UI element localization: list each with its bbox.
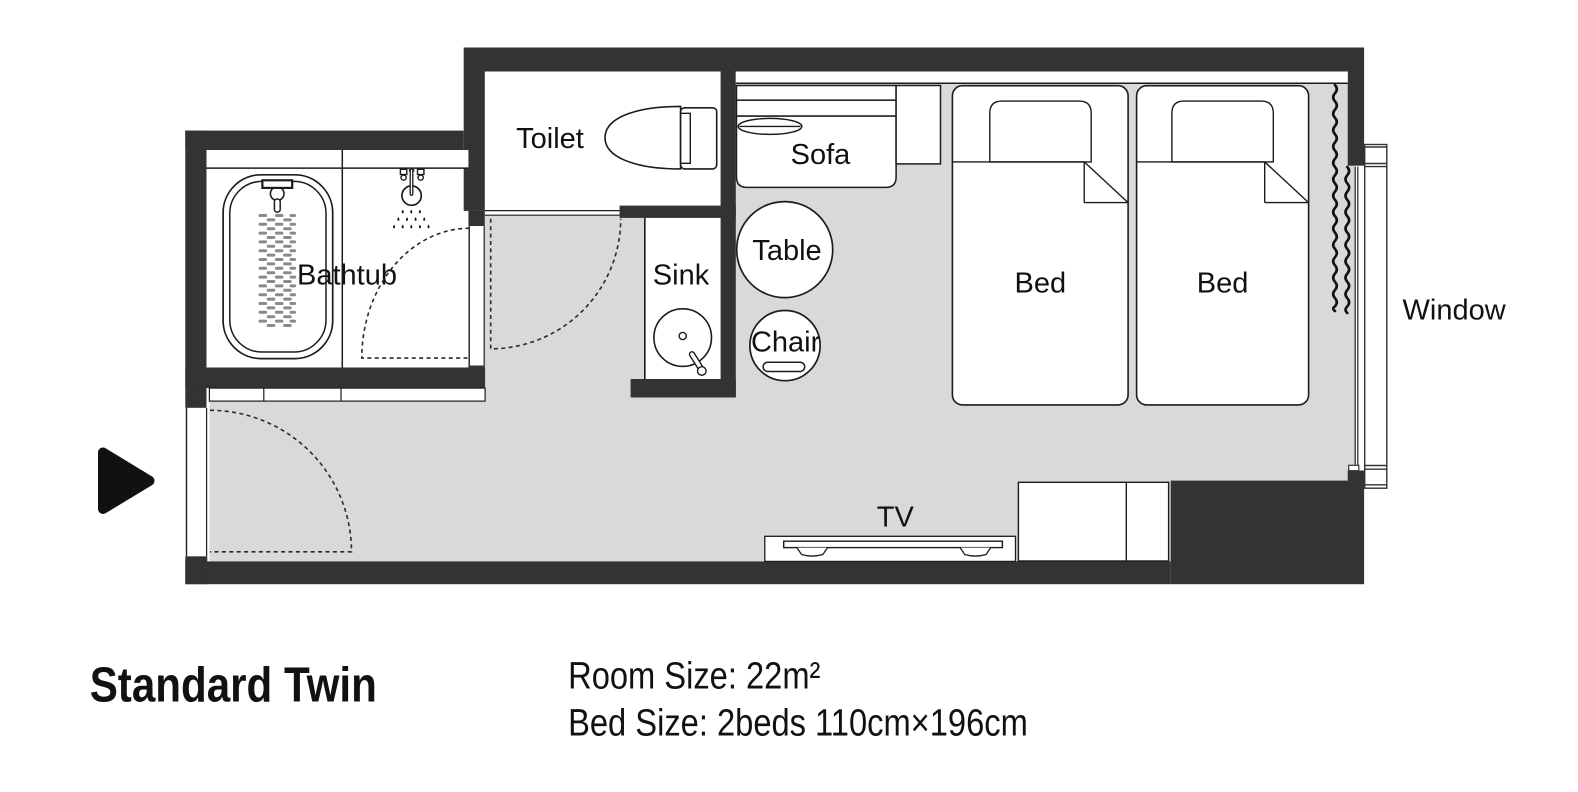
svg-text:Standard Twin: Standard Twin (90, 657, 377, 712)
svg-text:TV: TV (877, 502, 915, 534)
svg-text:Bathtub: Bathtub (297, 259, 397, 291)
svg-text:Room Size: 22m²: Room Size: 22m² (568, 654, 820, 697)
svg-text:Sink: Sink (653, 260, 710, 292)
svg-text:Chair: Chair (751, 327, 821, 359)
svg-text:Sofa: Sofa (791, 139, 852, 171)
svg-text:Bed: Bed (1014, 268, 1066, 300)
svg-text:Bed Size: 2beds 110cm×196cm: Bed Size: 2beds 110cm×196cm (568, 701, 1028, 744)
svg-text:Table: Table (752, 235, 821, 267)
svg-text:Bed: Bed (1197, 268, 1249, 300)
svg-text:Window: Window (1403, 294, 1507, 326)
svg-text:Toilet: Toilet (516, 123, 584, 155)
